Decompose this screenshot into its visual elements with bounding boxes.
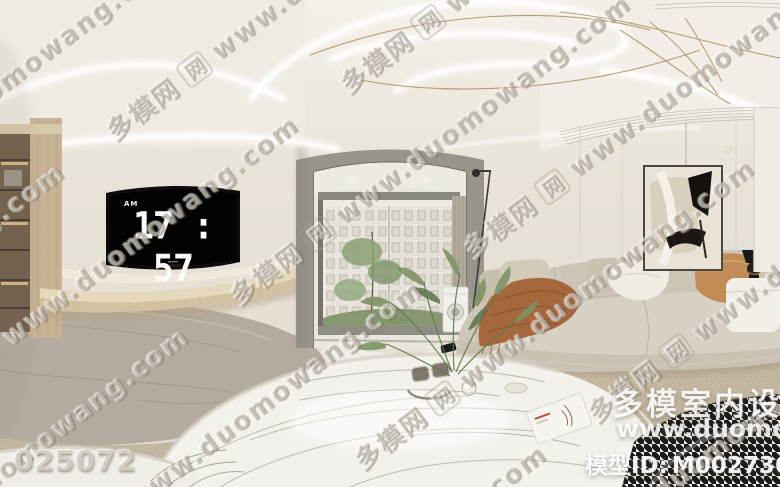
- glass-cup: [462, 381, 476, 395]
- balcony-window: [318, 192, 460, 335]
- tv-clock-time: 17 : 57: [107, 206, 239, 291]
- saucer: [505, 383, 527, 393]
- model-id-stamp: 模型ID:M0027369: [585, 446, 780, 480]
- ceiling: [0, 0, 780, 175]
- tv-screen: AM 17 : 57: [107, 188, 239, 266]
- panorama-viewport: AM 17 : 57 多模网网www.duomowang.com多模网网www.…: [0, 0, 780, 487]
- brand-url-stamp: www.duomowang.com: [616, 414, 780, 443]
- recessed-spotlights: [724, 146, 732, 154]
- slat-wall: [452, 196, 466, 290]
- side-table: [726, 278, 780, 332]
- model-id-label: 模型ID:: [585, 453, 668, 479]
- model-id-value: M0027369: [672, 453, 780, 479]
- right-wall-column: [754, 108, 780, 272]
- photo-id-stamp: 025072: [14, 444, 137, 477]
